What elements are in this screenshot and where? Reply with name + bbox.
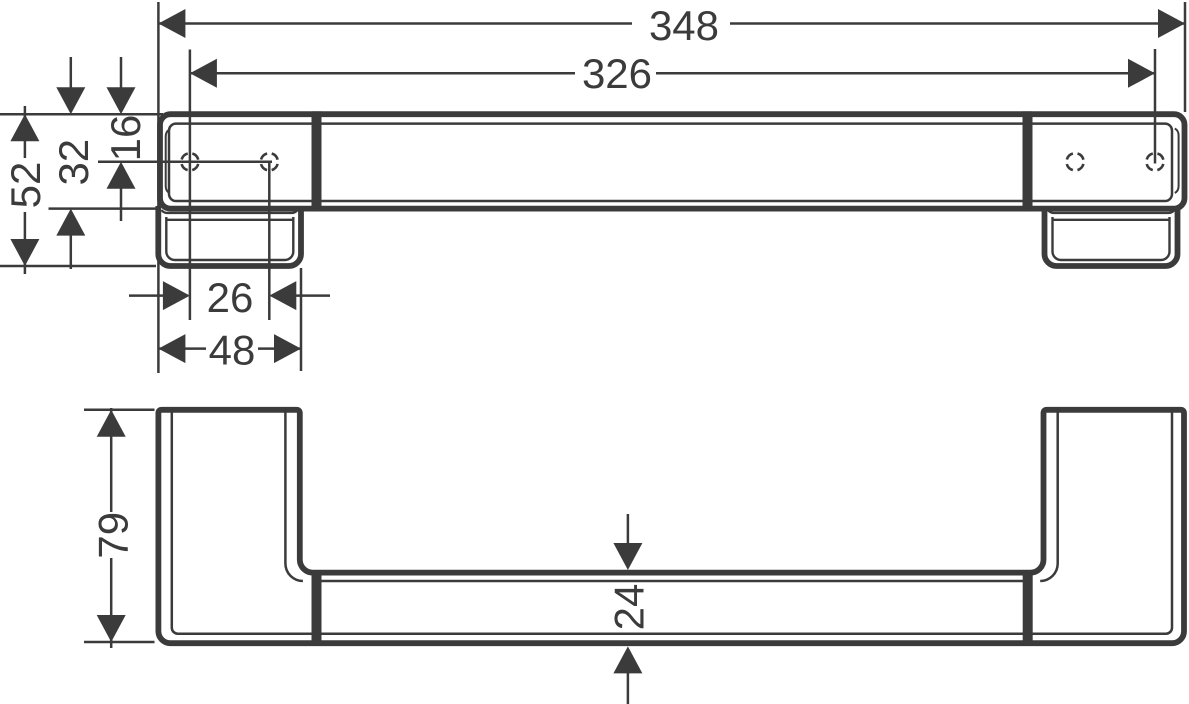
svg-text:79: 79 — [89, 512, 136, 559]
svg-text:16: 16 — [102, 115, 149, 162]
svg-text:48: 48 — [209, 327, 256, 374]
svg-text:32: 32 — [50, 139, 97, 186]
svg-text:52: 52 — [2, 162, 49, 209]
svg-text:348: 348 — [649, 2, 719, 49]
svg-text:326: 326 — [582, 50, 652, 97]
svg-text:26: 26 — [207, 274, 254, 321]
svg-text:24: 24 — [606, 584, 653, 631]
